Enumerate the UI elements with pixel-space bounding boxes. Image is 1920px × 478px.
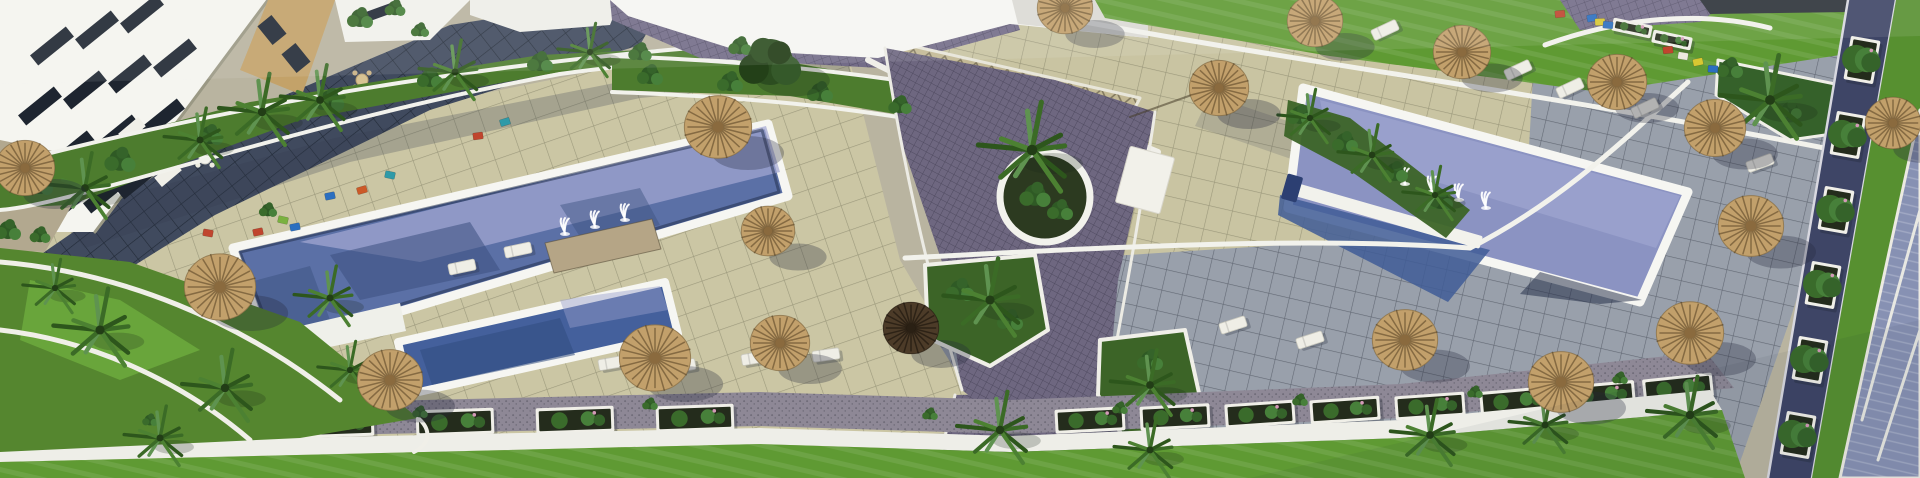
resort-aerial-render: Aerial 3D architectural rendering of a r… [0,0,1920,478]
resort-aerial-scene: Aerial 3D architectural rendering of a r… [0,0,1920,478]
